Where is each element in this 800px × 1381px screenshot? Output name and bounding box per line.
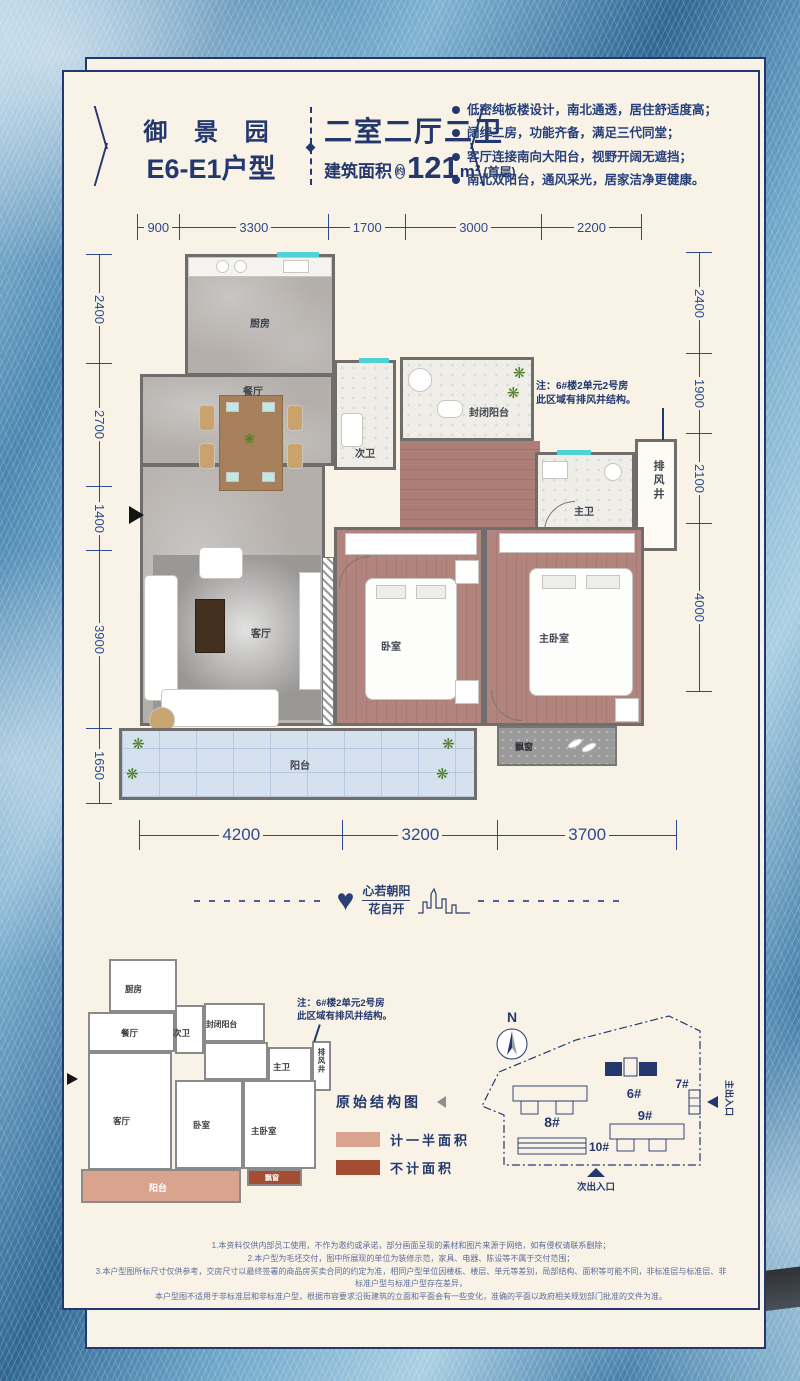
mini-label-living: 客厅 <box>113 1115 130 1127</box>
table-flowers-icon: ❀ <box>244 432 255 445</box>
project-name: 御 景 园 <box>118 112 304 147</box>
divider-dash <box>194 900 329 902</box>
floor-plan: 厨房 餐厅 ❀ 客厅 <box>137 254 677 802</box>
bay-window: 飘窗 <box>497 726 617 766</box>
mini-label-bay-window: 飘窗 <box>265 1173 279 1183</box>
title-divider-diamond-icon <box>306 143 316 153</box>
dim-label: 2700 <box>91 408 108 441</box>
nightstand <box>615 698 639 722</box>
stove-burner-icon <box>216 260 229 273</box>
legend-label-half: 计一半面积 <box>390 1130 470 1149</box>
area-prefix: 建筑面积 <box>324 157 392 182</box>
mini-label-master-bath: 主卫 <box>273 1061 290 1073</box>
area-value: 121 <box>407 154 459 182</box>
skyline-icon <box>418 887 470 915</box>
dim-label: 2100 <box>691 462 708 495</box>
slogan: 心若朝阳 花自开 <box>362 884 410 917</box>
disclaimer-line: 本户型图不适用于非标准层和非标准户型，根据市容要求沿街建筑的立面和平面会有一些变… <box>94 1291 728 1304</box>
mini-balcony: 阳台 <box>81 1169 241 1203</box>
pillow <box>586 575 620 589</box>
door-arc <box>491 690 522 721</box>
feature-text: 低密纯板楼设计，南北通透，居住舒适度高； <box>467 102 717 118</box>
dimension-top: 900 3300 1700 3000 2200 <box>137 214 642 240</box>
room-enclosed-balcony: 封闭阳台 ❋ ❋ <box>400 357 534 441</box>
plant-icon: ❋ <box>513 366 526 381</box>
mini-label-bedroom: 卧室 <box>193 1119 210 1131</box>
building-9-label: 9# <box>638 1108 653 1123</box>
site-plan: N 6# 7# 主出入口 8# <box>476 1000 734 1230</box>
bullet-icon <box>452 129 460 137</box>
dim-label: 2400 <box>691 287 708 320</box>
north-label: N <box>507 1009 517 1025</box>
mini-corridor <box>204 1042 268 1080</box>
building-8-label: 8# <box>544 1114 560 1130</box>
mini-entrance-arrow-icon <box>67 1073 84 1085</box>
mini-label-second-bath: 次卫 <box>173 1027 190 1039</box>
dim-label: 3900 <box>91 623 108 656</box>
mini-label-kitchen: 厨房 <box>125 983 142 995</box>
plan-note-line2: 此区域有排风井结构。 <box>536 394 676 408</box>
plan-note: 注：6#楼2单元2号房 此区域有排风井结构。 <box>536 380 676 408</box>
secondary-entrance-arrow-icon <box>587 1168 605 1177</box>
dim-label: 1400 <box>91 502 108 535</box>
sink <box>341 413 363 447</box>
main-entrance-label: 主出入口 <box>724 1080 734 1116</box>
pillow <box>542 575 576 589</box>
dining-chair <box>287 405 303 431</box>
dining-table: ❀ <box>219 395 283 491</box>
dimension-left: 2400 2700 1400 3900 1650 <box>86 254 112 804</box>
mini-note-line1: 注：6#楼2单元2号房 <box>297 997 447 1010</box>
building-6 <box>605 1058 657 1076</box>
plant-icon: ❋ <box>132 737 145 752</box>
entrance-arrow-icon <box>129 506 153 524</box>
mini-note-line2: 此区域有排风井结构。 <box>297 1010 447 1023</box>
mini-plan: 排风井 飘窗 阳台 厨房 餐厅 次卫 封闭阳台 主卫 客厅 卧室 主卧室 <box>87 957 332 1209</box>
legend-label-excluded: 不计面积 <box>390 1158 454 1177</box>
building-9 <box>610 1124 684 1151</box>
bullet-icon <box>452 176 460 184</box>
heart-icon: ♥ <box>337 886 355 916</box>
feature-text: 南北双阳台，通风采光，居家洁净更健康。 <box>467 172 705 188</box>
corridor <box>400 441 540 529</box>
feature-list: 低密纯板楼设计，南北通透，居住舒适度高； 阔绰二房，功能齐备，满足三代同堂； 客… <box>452 102 750 195</box>
disclaimer-line: 2.本户型为毛坯交付，图中所展现的单位为装修示范，家具、电器、陈设等不属于交付范… <box>94 1253 728 1266</box>
place-setting <box>262 472 275 482</box>
wardrobe <box>345 533 477 555</box>
place-setting <box>226 472 239 482</box>
approx-circle-icon: 约 <box>395 164 405 179</box>
pillow <box>416 585 446 599</box>
bed <box>365 578 457 700</box>
sink <box>542 461 568 479</box>
room-balcony: 阳台 ❋ ❋ ❋ ❋ <box>119 728 477 800</box>
room-bedroom: 卧室 <box>334 527 484 726</box>
feature-item: 阔绰二房，功能齐备，满足三代同堂； <box>452 125 750 141</box>
slipper-icon <box>580 741 597 755</box>
mini-label-balcony: 阳台 <box>149 1181 167 1194</box>
laundry-item <box>437 400 463 418</box>
legend-half-area: 计一半面积 <box>336 1130 470 1149</box>
note-pointer-line <box>662 408 664 440</box>
window-strip <box>557 450 591 455</box>
dim-label: 1700 <box>350 220 385 235</box>
window-strip <box>277 252 319 257</box>
plant-icon: ❋ <box>507 386 520 401</box>
room-kitchen: 厨房 <box>185 254 335 376</box>
dining-chair <box>287 443 303 469</box>
left-bracket-icon <box>102 106 114 186</box>
dim-label: 3000 <box>456 220 491 235</box>
mini-plan-note: 注：6#楼2单元2号房 此区域有排风井结构。 <box>297 997 447 1024</box>
room-label-master-bath: 主卫 <box>574 503 594 518</box>
main-entrance-arrow-icon <box>707 1096 718 1108</box>
window-strip <box>359 358 389 363</box>
plan-note-line1: 注：6#楼2单元2号房 <box>536 380 676 394</box>
dim-label: 3700 <box>565 825 609 845</box>
sofa <box>161 689 279 727</box>
divider: ♥ 心若朝阳 花自开 <box>64 884 758 917</box>
flyer-page: { "header": { "project_name": "御 景 园", "… <box>0 0 800 1381</box>
flyer-card: 御 景 园 E6-E1户型 二室二厅二卫 建筑面积 约 121 m² (首层) … <box>62 70 760 1310</box>
building-7 <box>689 1090 700 1114</box>
legend-excluded-area: 不计面积 <box>336 1158 454 1177</box>
original-structure-title-row: 原始结构图 <box>336 1092 446 1112</box>
mini-label-exhaust: 排风井 <box>316 1048 327 1074</box>
mini-label-enclosed-balcony: 封闭阳台 <box>206 1019 237 1030</box>
washing-machine-icon <box>408 368 432 392</box>
plant-icon: ❋ <box>442 737 455 752</box>
dining-chair <box>199 405 215 431</box>
title-block: 御 景 园 E6-E1户型 二室二厅二卫 建筑面积 约 121 m² (首层) <box>102 98 474 194</box>
building-8 <box>513 1086 587 1114</box>
room-label-living: 客厅 <box>251 625 271 640</box>
mini-living <box>88 1052 172 1170</box>
mini-label-dining: 餐厅 <box>121 1027 138 1039</box>
room-second-bath: 次卫 <box>334 360 396 470</box>
mini-label-master-bedroom: 主卧室 <box>251 1125 277 1137</box>
divider-dash <box>478 900 628 902</box>
feature-text: 阔绰二房，功能齐备，满足三代同堂； <box>467 125 680 141</box>
room-dining: 餐厅 ❀ <box>140 374 334 466</box>
kitchen-counter <box>188 257 332 277</box>
project-title: 御 景 园 E6-E1户型 <box>118 112 304 186</box>
shower-icon <box>604 463 622 481</box>
disclaimer-line: 1.本资料仅供内部员工使用，不作为邀约或承诺，部分画面呈现的素材和图片来源于网络… <box>94 1240 728 1253</box>
armchair <box>199 547 243 579</box>
dim-label: 2400 <box>91 293 108 326</box>
sliding-door <box>322 557 334 726</box>
secondary-entrance-label: 次出入口 <box>577 1181 615 1193</box>
disclaimer: 1.本资料仅供内部员工使用，不作为邀约或承诺，部分画面呈现的素材和图片来源于网络… <box>94 1240 728 1304</box>
stove-burner-icon <box>234 260 247 273</box>
dim-label: 4200 <box>219 825 263 845</box>
feature-item: 南北双阳台，通风采光，居家洁净更健康。 <box>452 172 750 188</box>
tv-cabinet <box>299 572 321 690</box>
door-arc <box>339 556 370 587</box>
room-label-enclosed-balcony: 封闭阳台 <box>469 404 509 419</box>
dimension-right: 2400 1900 2100 4000 <box>686 252 712 692</box>
sofa <box>144 575 178 701</box>
disclaimer-line: 3.本户型图所标尺寸仅供参考，交房尺寸以最终签署的商品房买卖合同的约定为准，相同… <box>94 1266 728 1292</box>
room-label-kitchen: 厨房 <box>250 315 270 330</box>
dim-label: 3300 <box>236 220 271 235</box>
plant-icon: ❋ <box>126 767 139 782</box>
bullet-icon <box>452 153 460 161</box>
left-triangle-icon <box>431 1096 446 1108</box>
feature-text: 客厅连接南向大阳台，视野开阔无遮挡； <box>467 149 692 165</box>
building-7-label: 7# <box>675 1077 689 1091</box>
legend-swatch-half <box>336 1132 380 1147</box>
dim-label: 3200 <box>398 825 442 845</box>
room-label-second-bath: 次卫 <box>355 445 375 460</box>
dim-label: 1650 <box>91 749 108 782</box>
kitchen-sink-icon <box>283 260 309 273</box>
slogan-line2: 花自开 <box>362 902 410 917</box>
dim-label: 4000 <box>691 591 708 624</box>
plant-icon: ❋ <box>436 767 449 782</box>
mini-bay-window: 飘窗 <box>247 1169 302 1186</box>
mini-kitchen <box>109 959 177 1012</box>
dim-label: 900 <box>144 220 172 235</box>
building-10-label: 10# <box>589 1140 609 1154</box>
place-setting <box>226 402 239 412</box>
pillow <box>376 585 406 599</box>
bullet-icon <box>452 106 460 114</box>
dim-label: 2200 <box>574 220 609 235</box>
building-6-label: 6# <box>627 1086 642 1101</box>
room-label-dining: 餐厅 <box>243 383 263 398</box>
feature-item: 低密纯板楼设计，南北通透，居住舒适度高； <box>452 102 750 118</box>
site-plan-svg: N 6# 7# 主出入口 8# <box>476 1000 734 1230</box>
feature-item: 客厅连接南向大阳台，视野开阔无遮挡； <box>452 149 750 165</box>
slogan-divider <box>362 900 410 901</box>
room-label-exhaust-shaft: 排风井 <box>650 460 666 502</box>
room-master-bedroom: 主卧室 <box>484 527 644 726</box>
original-structure-title: 原始结构图 <box>336 1092 421 1112</box>
dining-chair <box>199 443 215 469</box>
wardrobe <box>499 533 635 553</box>
nightstand <box>455 560 479 584</box>
room-label-bedroom: 卧室 <box>381 638 401 653</box>
dim-label: 1900 <box>691 377 708 410</box>
dimension-bottom: 4200 3200 3700 <box>139 820 677 850</box>
unit-name: E6-E1户型 <box>118 147 304 186</box>
room-label-master-bedroom: 主卧室 <box>539 630 569 645</box>
nightstand <box>455 680 479 704</box>
place-setting <box>262 402 275 412</box>
slogan-line1: 心若朝阳 <box>362 884 410 899</box>
building-10 <box>518 1138 586 1154</box>
legend-swatch-excluded <box>336 1160 380 1175</box>
room-label-balcony: 阳台 <box>290 757 310 772</box>
coffee-table <box>195 599 225 653</box>
room-label-bay-window: 飘窗 <box>515 740 533 753</box>
room-living: 客厅 <box>140 464 325 726</box>
